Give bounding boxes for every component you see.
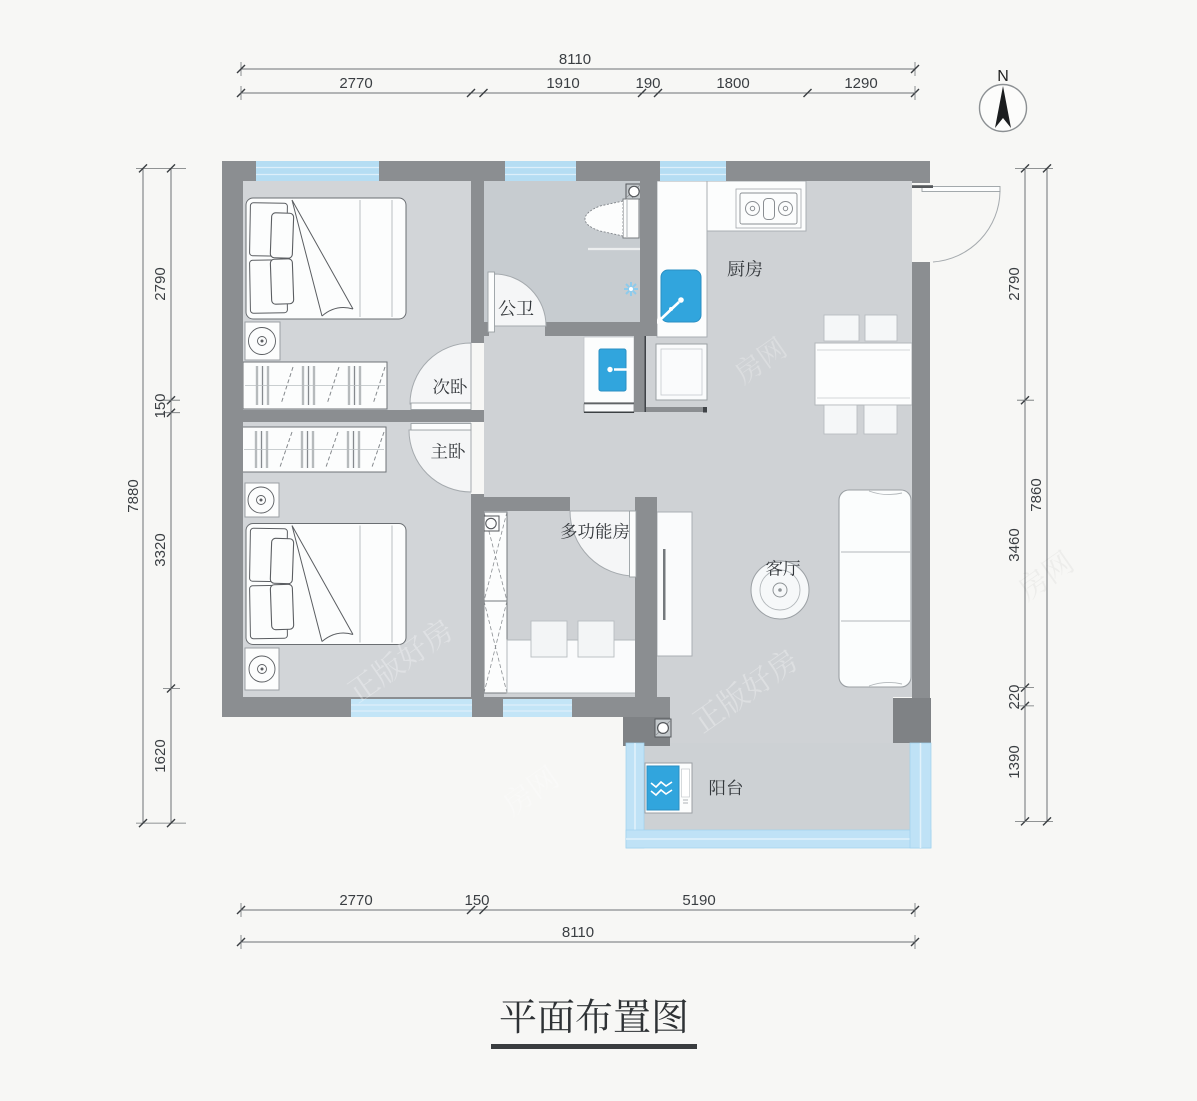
svg-text:3320: 3320 bbox=[152, 533, 169, 566]
svg-text:1620: 1620 bbox=[152, 739, 169, 772]
svg-text:2770: 2770 bbox=[339, 892, 372, 909]
svg-text:8110: 8110 bbox=[559, 51, 591, 68]
svg-text:220: 220 bbox=[1006, 684, 1023, 709]
svg-text:2790: 2790 bbox=[152, 267, 169, 300]
svg-text:1290: 1290 bbox=[844, 75, 877, 92]
svg-text:2790: 2790 bbox=[1006, 267, 1023, 300]
svg-text:150: 150 bbox=[152, 393, 169, 418]
svg-text:150: 150 bbox=[464, 892, 489, 909]
svg-text:1800: 1800 bbox=[716, 75, 749, 92]
svg-text:8110: 8110 bbox=[562, 924, 594, 941]
svg-text:2770: 2770 bbox=[339, 75, 372, 92]
svg-text:7860: 7860 bbox=[1028, 478, 1045, 511]
svg-text:1910: 1910 bbox=[546, 75, 579, 92]
svg-text:190: 190 bbox=[635, 75, 660, 92]
svg-text:N: N bbox=[997, 68, 1009, 85]
svg-text:3460: 3460 bbox=[1006, 528, 1023, 561]
svg-text:5190: 5190 bbox=[682, 892, 715, 909]
svg-text:7880: 7880 bbox=[125, 479, 142, 512]
svg-text:1390: 1390 bbox=[1006, 745, 1023, 778]
